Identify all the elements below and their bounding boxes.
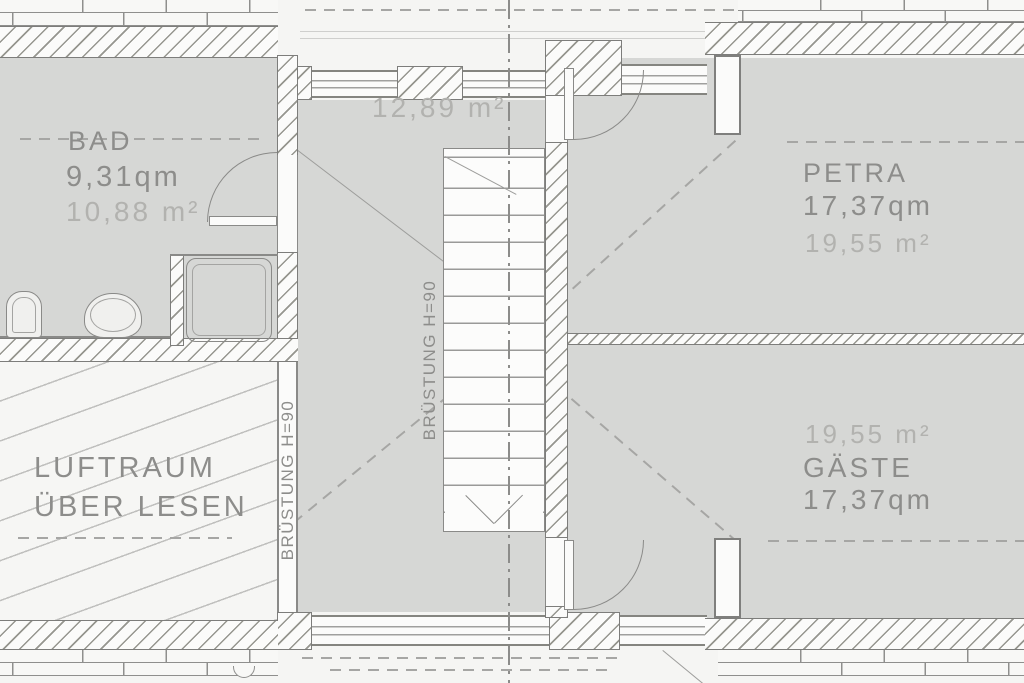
wall-hall-east [545, 142, 568, 538]
bad-door-leaf [209, 216, 277, 226]
slope-line-petra [787, 141, 1024, 143]
window-gaeste-south [620, 615, 707, 646]
area-m2-hall: 12,89 m² [372, 92, 507, 124]
shower-tray-inner [192, 264, 266, 336]
wall-bad-east-upper [277, 55, 298, 158]
gutter-line-2 [300, 38, 705, 39]
area-qm-bad: 9,31qm [66, 161, 181, 194]
terrace-line-2 [330, 669, 610, 671]
brick-course [738, 11, 1024, 22]
eaves-line-top [305, 9, 737, 11]
area-m2-bad: 10,88 m² [66, 196, 201, 228]
floor-plan: BRÜSTUNG H=90 BRÜSTUNG H=90 BAD 9,31qm 1… [0, 0, 1024, 683]
room-label-petra: PETRA [803, 158, 908, 189]
room-label-gaeste: GÄSTE [803, 452, 913, 484]
slope-line-luftraum [18, 537, 232, 539]
room-label-luftraum-2: ÜBER LESEN [34, 491, 248, 524]
terrace-line-1 [302, 657, 618, 659]
brick-course [0, 0, 278, 13]
wall-petra-gaeste [568, 333, 1024, 345]
slope-line-gaeste [768, 540, 1024, 542]
wall-north-right [705, 22, 1024, 55]
duct-column-petra [714, 55, 741, 135]
railing-stair-label: BRÜSTUNG H=90 [420, 250, 440, 470]
brick-course [0, 650, 278, 663]
area-m2-gaeste: 19,55 m² [805, 419, 932, 450]
petra-door-leaf [564, 68, 574, 140]
wall-south-left [0, 620, 278, 650]
slope-line-bad [20, 138, 262, 140]
brick-course [0, 13, 278, 26]
brick-course [738, 0, 1024, 11]
staircase [443, 148, 545, 532]
wall-south-right [705, 618, 1024, 650]
railing-luftraum-label: BRÜSTUNG H=90 [278, 360, 298, 600]
duct-column-gaeste [714, 538, 741, 618]
brick-course [718, 650, 1024, 663]
window-hall-south [312, 615, 549, 646]
room-label-bad: BAD [68, 126, 133, 157]
room-label-luftraum-1: LUFTRAUM [34, 452, 216, 485]
wall-north-left [0, 26, 278, 58]
downpipe-bump [233, 666, 255, 678]
brick-course [718, 663, 1024, 676]
shower-partition [170, 254, 184, 346]
toilet-inner [12, 297, 36, 333]
area-m2-petra: 19,55 m² [805, 228, 932, 259]
party-wall-centerline [508, 0, 510, 683]
gutter-line-1 [300, 31, 705, 32]
wall-pier [277, 612, 312, 650]
sink-inner [90, 298, 136, 332]
room-gaeste-area [568, 345, 1024, 618]
bad-door-opening [277, 155, 298, 252]
roof-line-bottom [662, 650, 703, 683]
area-qm-gaeste: 17,37qm [803, 484, 933, 516]
area-qm-petra: 17,37qm [803, 190, 933, 222]
staircase-lower-landing [445, 500, 543, 530]
shower-top-line [170, 254, 278, 256]
gaeste-door-leaf [564, 540, 574, 610]
